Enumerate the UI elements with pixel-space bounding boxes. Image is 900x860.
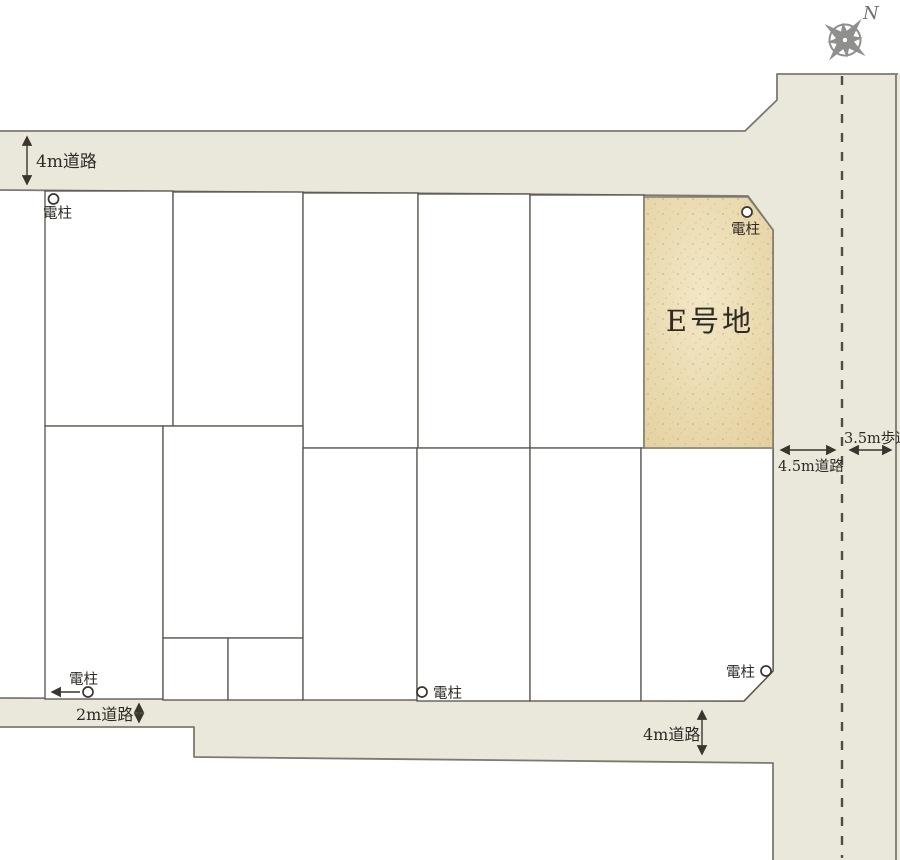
road-label-right: 4.5m道路 — [778, 458, 844, 475]
lot — [163, 638, 228, 700]
utility-pole-label: 電柱 — [731, 221, 760, 238]
utility-pole-label: 電柱 — [69, 671, 98, 688]
compass-rose-icon: N — [809, 3, 883, 77]
lot — [530, 448, 641, 701]
lot — [530, 195, 644, 448]
lot — [228, 638, 303, 700]
sidewalk-label-right: 3.5m歩道 — [844, 430, 900, 447]
lot — [163, 426, 303, 638]
road-label-top: 4m道路 — [36, 152, 97, 172]
compass-north-label: N — [862, 3, 880, 24]
lot — [45, 426, 163, 699]
lot — [641, 448, 773, 701]
road-label-bottom-right: 4m道路 — [643, 725, 700, 744]
utility-pole-label: 電柱 — [43, 205, 72, 222]
lot — [303, 448, 417, 700]
lot — [45, 191, 173, 426]
lot-layout-plan: E号地 4m道路 2m道路 4m道路 4.5m道路 3.5m歩道 電柱 電柱 電… — [0, 0, 900, 860]
featured-lot-label: E号地 — [666, 304, 754, 338]
utility-pole-label: 電柱 — [433, 685, 462, 702]
lot — [418, 194, 530, 448]
lot — [303, 193, 418, 448]
road-label-bottom-left: 2m道路 — [76, 705, 133, 724]
lot — [173, 192, 303, 426]
lot — [417, 448, 530, 701]
utility-pole-label: 電柱 — [726, 664, 755, 681]
